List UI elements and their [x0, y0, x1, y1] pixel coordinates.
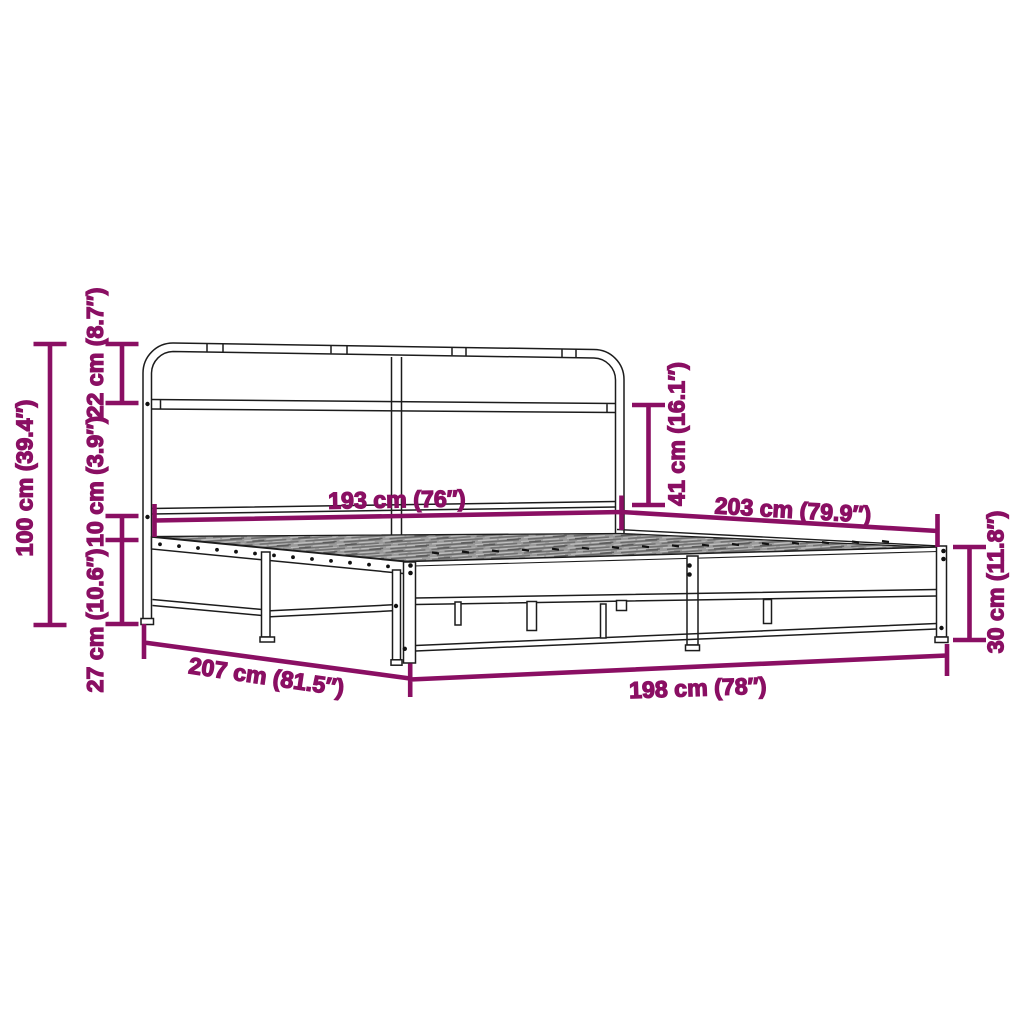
svg-text:193 cm (76″): 193 cm (76″)	[328, 485, 466, 513]
svg-text:22 cm (8.7″): 22 cm (8.7″)	[82, 288, 108, 419]
svg-text:30 cm (11.8″): 30 cm (11.8″)	[983, 511, 1009, 654]
svg-text:100 cm (39.4″): 100 cm (39.4″)	[12, 400, 38, 557]
svg-text:10 cm (3.9″): 10 cm (3.9″)	[82, 416, 108, 547]
svg-text:41 cm (16.1″): 41 cm (16.1″)	[664, 362, 690, 506]
svg-text:198 cm (78″): 198 cm (78″)	[629, 673, 767, 704]
svg-text:27 cm (10.6″): 27 cm (10.6″)	[82, 549, 108, 693]
